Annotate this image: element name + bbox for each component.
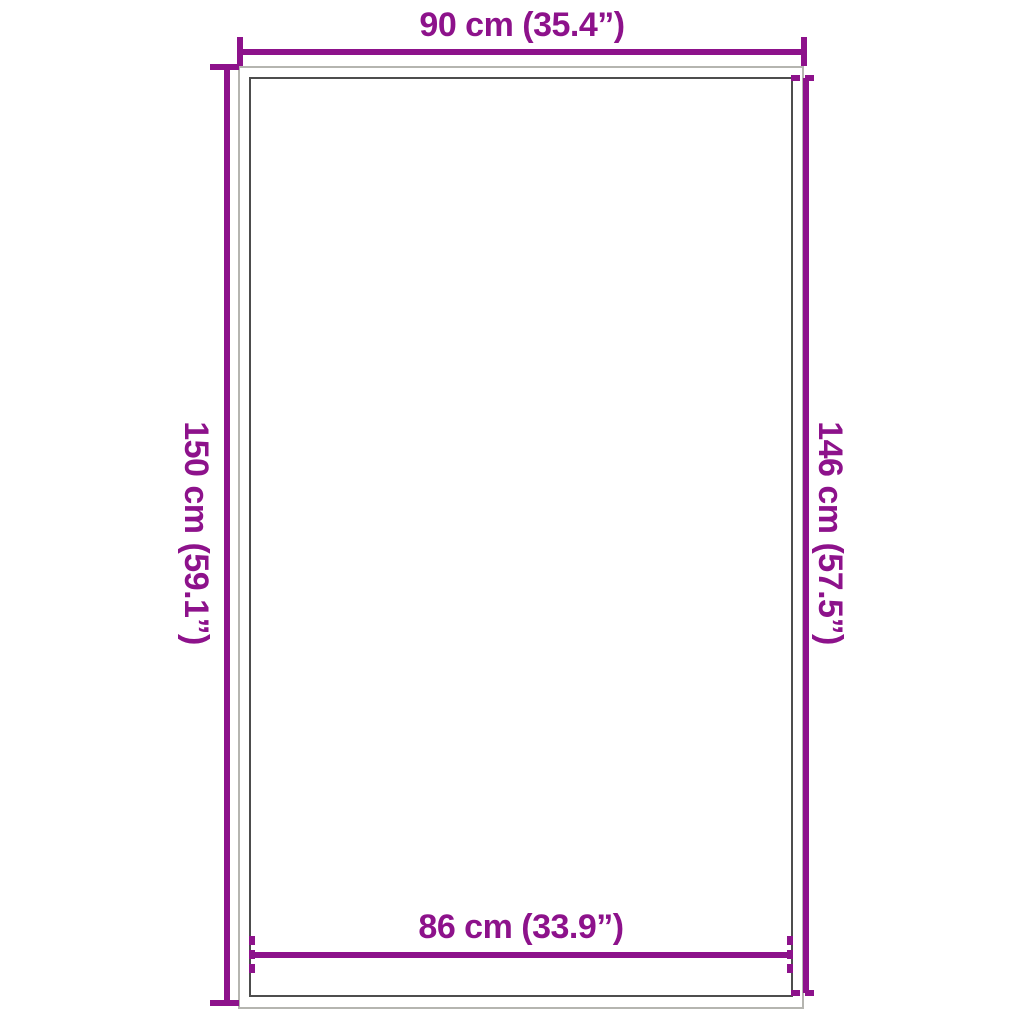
dimension-line-top [240, 49, 804, 55]
dimension-tick-left-bottom [210, 1000, 239, 1006]
dimension-dashed-tick-right-top [791, 75, 819, 81]
mat-inner-outline [249, 77, 793, 997]
dimension-label-left: 150 cm (59.1”) [177, 421, 215, 645]
product-dimension-diagram: 90 cm (35.4”) 150 cm (59.1”) 146 cm (57.… [0, 0, 1024, 1024]
dimension-tick-top-right [801, 37, 807, 66]
dimension-tick-top-left [237, 37, 243, 66]
dimension-label-top: 90 cm (35.4”) [240, 6, 804, 44]
dimension-line-right [803, 78, 809, 993]
dimension-line-bottom [252, 952, 790, 958]
dimension-dashed-tick-bottom-left [249, 936, 255, 976]
dimension-label-right: 146 cm (57.5”) [811, 421, 849, 645]
dimension-dashed-tick-right-bottom [791, 990, 819, 996]
dimension-tick-left-top [210, 64, 239, 70]
dimension-label-bottom: 86 cm (33.9”) [252, 908, 790, 946]
dimension-line-left [224, 66, 230, 1006]
dimension-dashed-tick-bottom-right [787, 936, 793, 976]
